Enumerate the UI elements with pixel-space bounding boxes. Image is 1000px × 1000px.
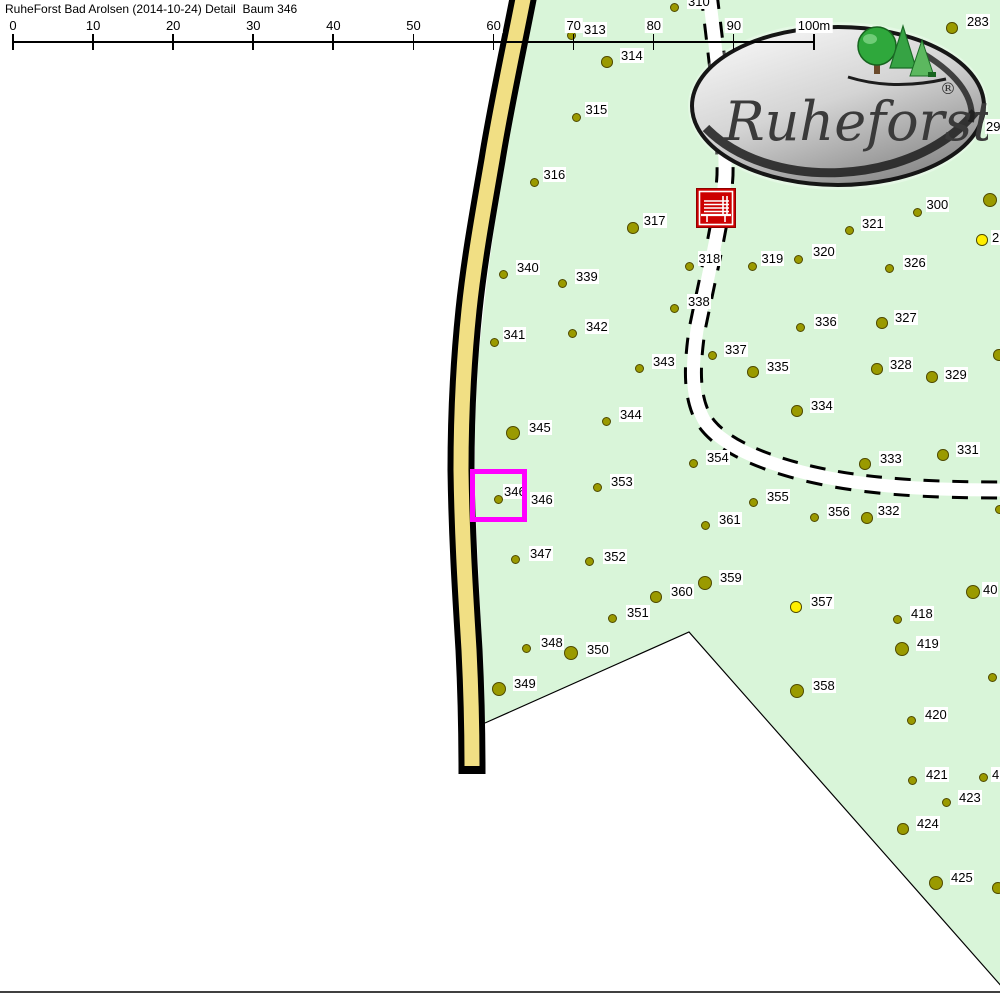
tree-label-extra-4: 4: [991, 767, 1000, 782]
tree-dot-338[interactable]: [670, 304, 679, 313]
tree-label-348: 348: [540, 635, 564, 650]
tree-dot[interactable]: [992, 882, 1000, 894]
selected-tree-highlight[interactable]: [470, 469, 527, 522]
scale-label-50: 50: [404, 18, 422, 33]
tree-label-425: 425: [950, 870, 974, 885]
tree-label-342: 342: [585, 319, 609, 334]
tree-dot-342[interactable]: [568, 329, 577, 338]
tree-dot-318[interactable]: [685, 262, 694, 271]
tree-dot-418[interactable]: [893, 615, 902, 624]
tree-label-321: 321: [861, 216, 885, 231]
tree-label-extra-40: 40: [982, 582, 998, 597]
tree-dot-358[interactable]: [790, 684, 804, 698]
tree-dot-343[interactable]: [635, 364, 644, 373]
tree-label-349: 349: [513, 676, 537, 691]
tree-label-343: 343: [652, 354, 676, 369]
tree-dot-326[interactable]: [885, 264, 894, 273]
scale-tick-20: [172, 34, 174, 50]
tree-label-423: 423: [958, 790, 982, 805]
tree-dot-420[interactable]: [907, 716, 916, 725]
tree-dot-352[interactable]: [585, 557, 594, 566]
tree-label-316: 316: [543, 167, 567, 182]
scale-label-10: 10: [84, 18, 102, 33]
tree-dot-344[interactable]: [602, 417, 611, 426]
tree-dot-359[interactable]: [698, 576, 712, 590]
tree-label-356: 356: [827, 504, 851, 519]
scale-tick-70: [573, 34, 575, 50]
tree-dot-421[interactable]: [908, 776, 917, 785]
tree-dot-321[interactable]: [845, 226, 854, 235]
tree-label-300: 300: [926, 197, 950, 212]
scale-label-80: 80: [645, 18, 663, 33]
tree-label-337: 337: [724, 342, 748, 357]
tree-dot-424[interactable]: [897, 823, 909, 835]
scale-tick-100m: [813, 34, 815, 50]
scale-label-20: 20: [164, 18, 182, 33]
scale-label-0: 0: [7, 18, 18, 33]
tree-dot-319[interactable]: [748, 262, 757, 271]
tree-dot-425[interactable]: [929, 876, 943, 890]
scale-label-60: 60: [484, 18, 502, 33]
tree-label-353: 353: [610, 474, 634, 489]
tree-dot-360[interactable]: [650, 591, 662, 603]
tree-dot[interactable]: [983, 193, 997, 207]
tree-dot-355[interactable]: [749, 498, 758, 507]
tree-dot-349[interactable]: [492, 682, 506, 696]
tree-label-354: 354: [706, 450, 730, 465]
tree-label-extra-2: 2: [991, 230, 1000, 245]
tree-label-334: 334: [810, 398, 834, 413]
tree-label-340: 340: [516, 260, 540, 275]
tree-label-345: 345: [528, 420, 552, 435]
tree-label-361: 361: [718, 512, 742, 527]
tree-label-332: 332: [877, 503, 901, 518]
tree-label-315: 315: [585, 102, 609, 117]
tree-dot-327[interactable]: [876, 317, 888, 329]
tree-label-318: 318: [698, 251, 722, 266]
tree-dot-328[interactable]: [871, 363, 883, 375]
tree-label-319: 319: [761, 251, 785, 266]
tree-dot-350[interactable]: [564, 646, 578, 660]
scale-tick-0: [12, 34, 14, 50]
scale-tick-50: [413, 34, 415, 50]
tree-dot-315[interactable]: [572, 113, 581, 122]
tree-dot-423[interactable]: [942, 798, 951, 807]
tree-label-339: 339: [575, 269, 599, 284]
tree-dot-339[interactable]: [558, 279, 567, 288]
tree-label-357: 357: [810, 594, 834, 609]
tree-dot-333[interactable]: [859, 458, 871, 470]
tree-label-351: 351: [626, 605, 650, 620]
tree-dot[interactable]: [993, 349, 1000, 361]
tree-label-335: 335: [766, 359, 790, 374]
logo-registered-mark: ®: [940, 79, 956, 98]
tree-label-347: 347: [529, 546, 553, 561]
scale-label-100m: 100m: [796, 18, 833, 33]
scale-tick-90: [733, 34, 735, 50]
tree-label-424: 424: [916, 816, 940, 831]
tree-label-420: 420: [924, 707, 948, 722]
scale-label-70: 70: [564, 18, 582, 33]
map-title: RuheForst Bad Arolsen (2014-10-24) Detai…: [3, 1, 299, 17]
tree-label-327: 327: [894, 310, 918, 325]
tree-dot-337[interactable]: [708, 351, 717, 360]
tree-label-341: 341: [503, 327, 527, 342]
tree-label-344: 344: [619, 407, 643, 422]
tree-dot-348[interactable]: [522, 644, 531, 653]
tree-dot-334[interactable]: [791, 405, 803, 417]
map-viewport: 3103133143153163173183193203213263273283…: [0, 0, 1000, 1000]
tree-label-333: 333: [879, 451, 903, 466]
logo-wordmark: Ruheforst: [723, 90, 988, 153]
tree-label-421: 421: [925, 767, 949, 782]
tree-dot-329[interactable]: [926, 371, 938, 383]
tree-dot-356[interactable]: [810, 513, 819, 522]
tree-dot-340[interactable]: [499, 270, 508, 279]
scale-label-30: 30: [244, 18, 262, 33]
tree-dot-361[interactable]: [701, 521, 710, 530]
tree-label-418: 418: [910, 606, 934, 621]
tree-label-336: 336: [814, 314, 838, 329]
scale-tick-10: [92, 34, 94, 50]
tree-dot-335[interactable]: [747, 366, 759, 378]
scale-label-40: 40: [324, 18, 342, 33]
tree-label-360: 360: [670, 584, 694, 599]
tree-label-326: 326: [903, 255, 927, 270]
tree-dot-341[interactable]: [490, 338, 499, 347]
tree-label-317: 317: [643, 213, 667, 228]
tree-label-320: 320: [812, 244, 836, 259]
tree-label-359: 359: [719, 570, 743, 585]
tree-label-338: 338: [687, 294, 711, 309]
tree-label-346: 346: [530, 492, 554, 507]
tree-dot[interactable]: [995, 505, 1000, 514]
tree-label-331: 331: [956, 442, 980, 457]
tree-label-350: 350: [586, 642, 610, 657]
tree-dot-300[interactable]: [913, 208, 922, 217]
tree-label-355: 355: [766, 489, 790, 504]
tree-label-352: 352: [603, 549, 627, 564]
tree-label-329: 329: [944, 367, 968, 382]
tree-dot-357[interactable]: [790, 601, 802, 613]
tree-dot[interactable]: [988, 673, 997, 682]
tree-dot[interactable]: [966, 585, 980, 599]
tree-dot-419[interactable]: [895, 642, 909, 656]
tree-dot[interactable]: [976, 234, 988, 246]
scale-tick-80: [653, 34, 655, 50]
tree-label-328: 328: [889, 357, 913, 372]
tree-dot-347[interactable]: [511, 555, 520, 564]
tree-dot-353[interactable]: [593, 483, 602, 492]
tree-dot-354[interactable]: [689, 459, 698, 468]
tree-dot-316[interactable]: [530, 178, 539, 187]
scale-tick-40: [332, 34, 334, 50]
tree-label-358: 358: [812, 678, 836, 693]
tree-dot-317[interactable]: [627, 222, 639, 234]
bench-icon[interactable]: [696, 188, 736, 228]
scale-label-90: 90: [725, 18, 743, 33]
tree-dot-351[interactable]: [608, 614, 617, 623]
tree-dot-345[interactable]: [506, 426, 520, 440]
tree-dot[interactable]: [979, 773, 988, 782]
scale-tick-30: [252, 34, 254, 50]
tree-label-419: 419: [916, 636, 940, 651]
tree-dot-331[interactable]: [937, 449, 949, 461]
tree-dot-332[interactable]: [861, 512, 873, 524]
scale-tick-60: [493, 34, 495, 50]
tree-dot-336[interactable]: [796, 323, 805, 332]
tree-dot-320[interactable]: [794, 255, 803, 264]
